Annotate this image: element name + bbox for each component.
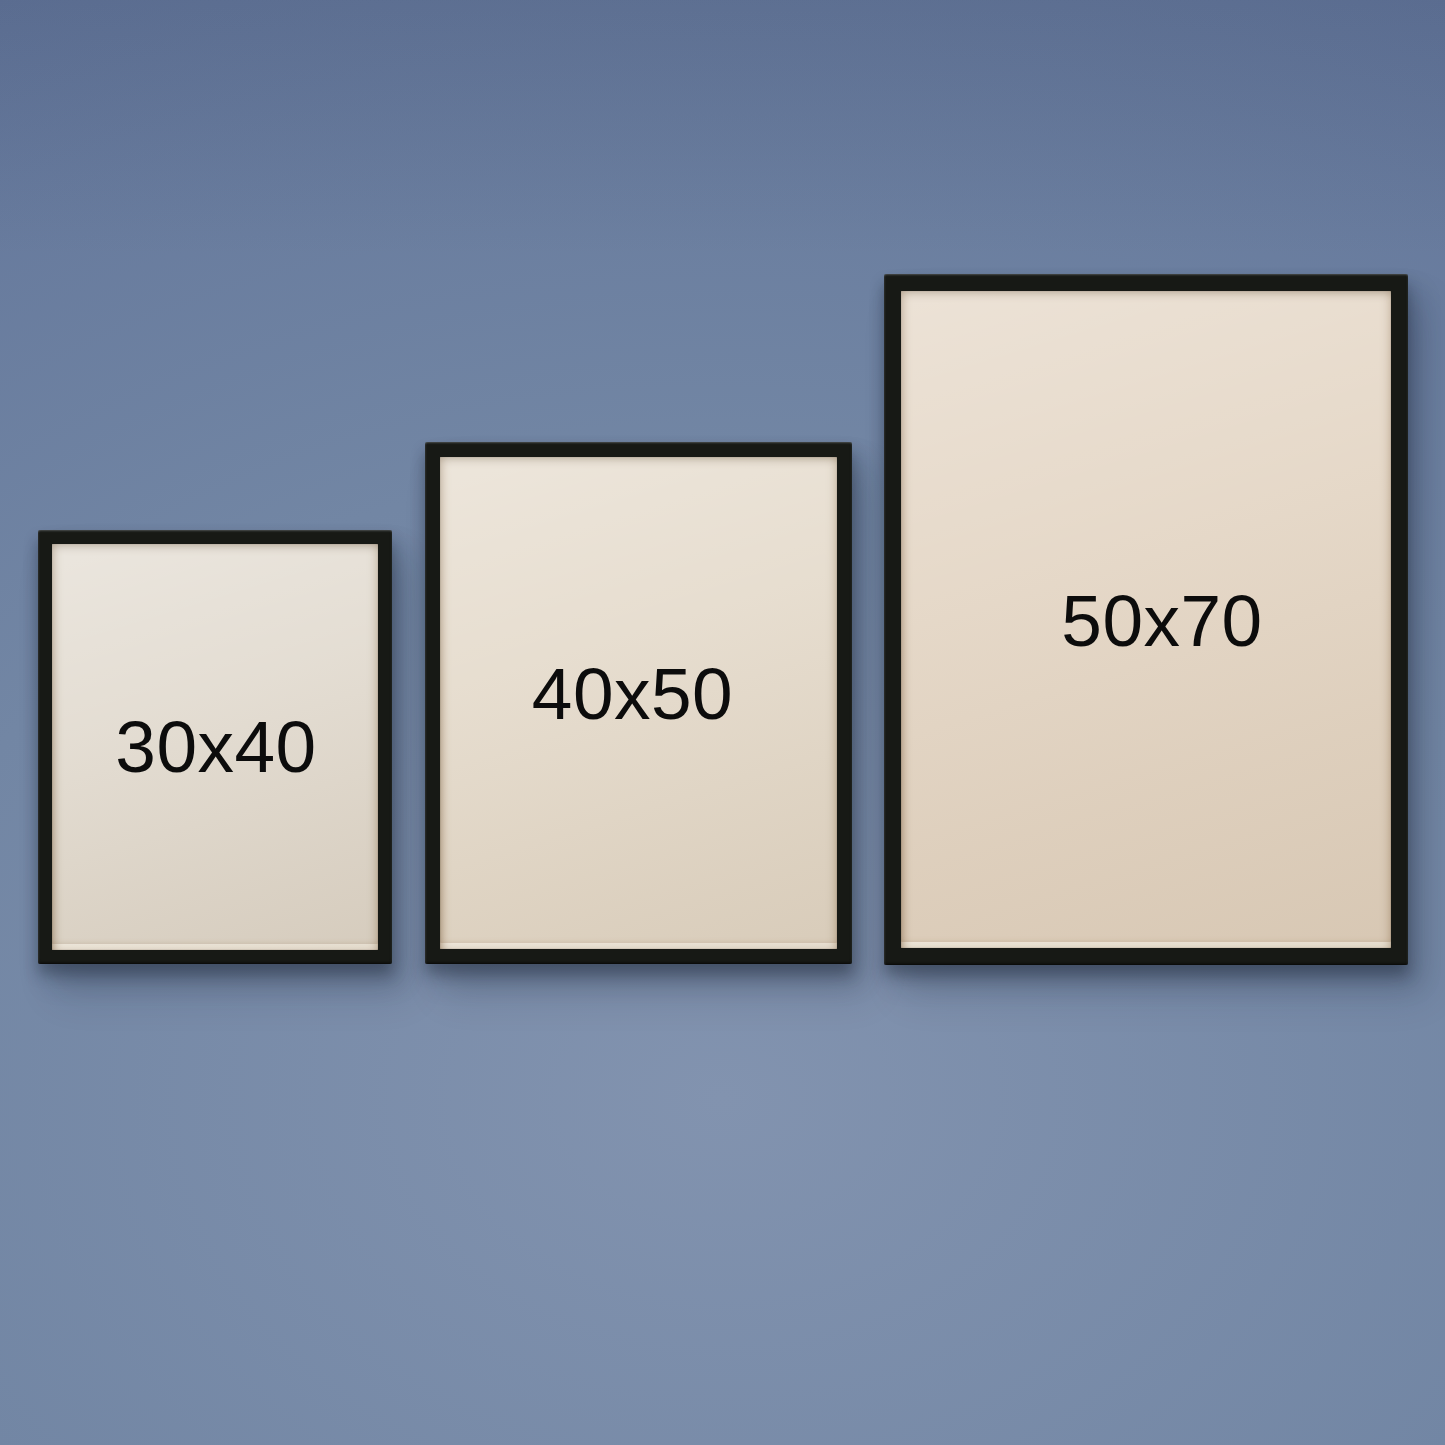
frame-size-label: 50x70	[1061, 584, 1262, 657]
frame-size-label: 40x50	[532, 657, 733, 730]
picture-frame-40x50: 40x50	[425, 442, 852, 964]
frame-size-label: 30x40	[115, 710, 316, 783]
picture-frame-30x40: 30x40	[38, 530, 392, 964]
frame-mat-paper: 30x40	[52, 544, 378, 950]
picture-frame-50x70: 50x70	[884, 274, 1408, 965]
frame-mat-paper: 40x50	[440, 457, 837, 949]
wall-background: 30x40 40x50 50x70	[0, 0, 1445, 1445]
frame-mat-paper: 50x70	[901, 291, 1391, 948]
